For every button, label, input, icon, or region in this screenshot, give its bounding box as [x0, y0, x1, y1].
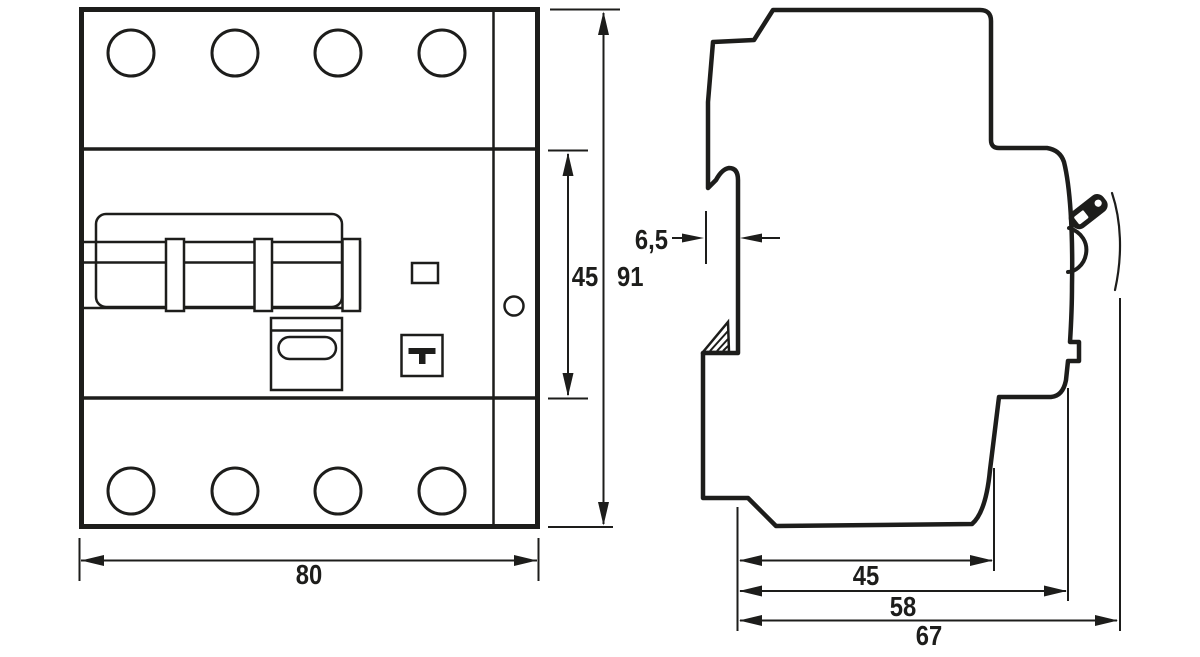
- dim-45f-label: 45: [572, 260, 598, 292]
- dim-91-label: 91: [617, 260, 643, 292]
- dim-58-label: 58: [890, 590, 916, 622]
- drawing-canvas: 80 45 91: [0, 0, 1200, 657]
- test-button-t-stem: [419, 348, 426, 364]
- toggle-handle-3: [343, 239, 361, 311]
- toggle-handle-2: [255, 239, 273, 311]
- dim-45s-label: 45: [853, 559, 879, 591]
- dim-67-label: 67: [916, 619, 942, 651]
- dimension-drawing: 80 45 91: [0, 0, 1200, 657]
- toggle-handle-1: [166, 239, 184, 311]
- dim-80-label: 80: [296, 558, 322, 590]
- dim-65-label: 6,5: [635, 223, 668, 255]
- background: [0, 0, 1200, 657]
